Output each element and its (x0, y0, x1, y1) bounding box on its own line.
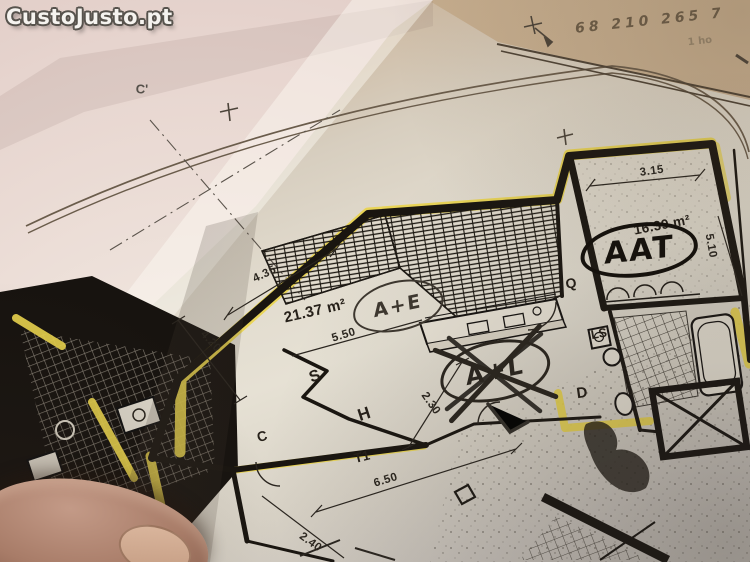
bedroom-wardrobe (604, 282, 700, 302)
custojusto-watermark: CustoJusto.pt (6, 5, 173, 29)
walls-inner (247, 312, 660, 561)
lower-unit-fragment (300, 497, 668, 560)
handwritten-phone-number: 68 210 265 7 (575, 6, 726, 36)
stamp-crossed-out: A+L (434, 330, 556, 412)
room-label-c: C (255, 428, 268, 444)
walls-outer (152, 144, 750, 541)
stamp-living: A+E (348, 272, 448, 340)
stamp-crossed-text: A+L (464, 351, 526, 391)
room-label-d: D (576, 385, 589, 401)
dimension-bedroom-width: 3.15 (639, 165, 665, 180)
room-label-h: H (356, 404, 373, 424)
dimension-entry: 2.40 (297, 531, 323, 555)
diamond-symbol (455, 485, 475, 504)
stamp-aat: AAT (578, 217, 701, 283)
survey-cross-marks (220, 16, 748, 145)
dimension-living-diag: 4.35 (252, 265, 279, 286)
room-label-q: Q (565, 275, 578, 290)
dimension-hall: 2.30 (418, 391, 441, 418)
paper-edge-lines (497, 44, 750, 106)
dimension-total-width: 6.50 (373, 472, 400, 490)
dimension-bedroom-depth: 5.10 (702, 233, 718, 259)
stamp-aat-text: AAT (604, 229, 674, 272)
bathroom-fixtures (588, 311, 743, 417)
handwritten-note: 1 ho (687, 36, 712, 48)
elevator-shaft (584, 381, 747, 492)
area-label-living: 21.37 m² (282, 297, 347, 326)
stamp-living-text: A+E (373, 290, 424, 322)
dimension-living-side: 4.20 (198, 329, 223, 355)
unit-type-label: T1 (353, 449, 372, 466)
room-label-s: S (307, 368, 323, 387)
photo-of-floorplan: 68 210 265 7 1 ho C' 3.15 16.39 m² 5.10 … (0, 0, 750, 562)
reference-mark-label: C' (136, 83, 148, 96)
room-label-ls: LS (590, 326, 608, 341)
dimension-living-width: 5.50 (331, 327, 358, 345)
